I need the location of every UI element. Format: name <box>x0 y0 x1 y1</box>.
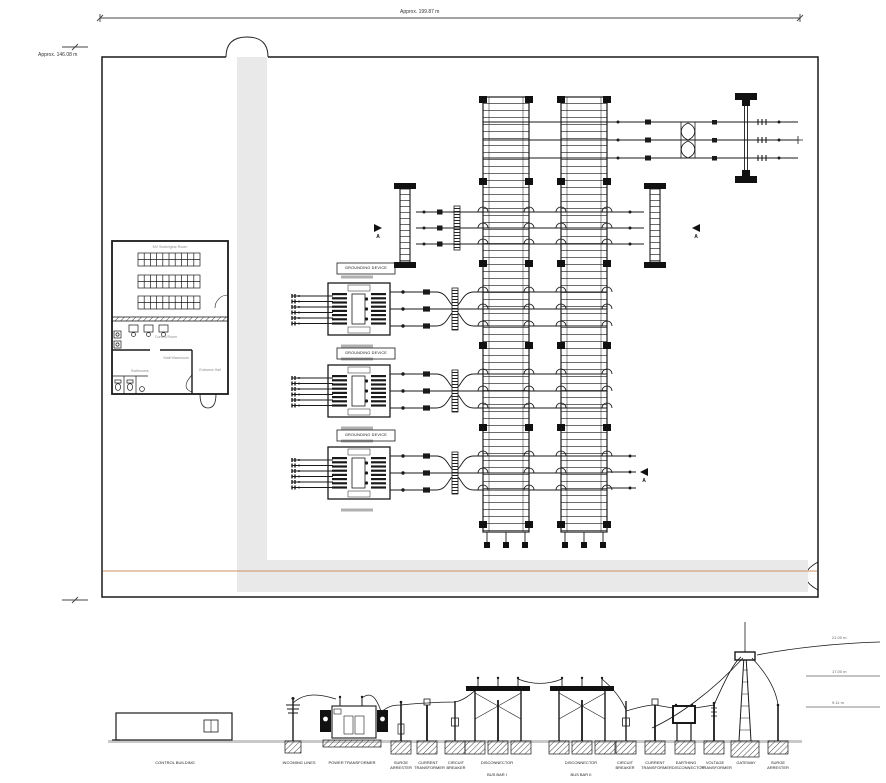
equip-label-disconnector-1: DISCONNECTOR <box>478 760 516 765</box>
equip-label-circuit-breaker-2: CIRCUIT BREAKER <box>615 760 635 770</box>
elevation-wires <box>381 642 880 728</box>
circuit-breaker-2 <box>623 701 630 741</box>
busbar-label-2: BUS BAR II <box>566 772 596 777</box>
room-label-switchgear: MV Switchgear Room <box>130 245 210 250</box>
busbar-portal-2 <box>550 677 614 741</box>
level-label-3: 9.11 m <box>832 700 844 705</box>
equip-label-earthing-disconnector: EARTHING DISCONNECTOR <box>672 760 700 770</box>
busbar-label-1: BUS BAR I <box>482 772 512 777</box>
level-label-1: 21.00 m <box>832 635 846 640</box>
equip-label-voltage-transformer: VOLTAGE TRANSFORMER <box>701 760 729 770</box>
equip-label-gateway: GATEWAY <box>733 760 759 765</box>
elevation-view <box>108 622 880 757</box>
section-marker-a3: A <box>642 478 646 484</box>
door-arc <box>215 295 228 308</box>
substation-drawing: Approx. 199.87 m Approx. 146.08 m GROUND… <box>0 0 886 783</box>
section-marker-a1: A <box>376 234 380 240</box>
equip-label-disconnector-2: DISCONNECTOR <box>562 760 600 765</box>
dimension-left-label: Approx. 146.08 m <box>38 52 77 59</box>
voltage-transformer <box>711 702 717 741</box>
surge-arrester-2 <box>777 704 780 741</box>
bathroom-fixtures <box>112 376 148 394</box>
grounding-device-label-2: GROUNDING DEVICE <box>337 351 395 356</box>
entrance-door-arcs <box>200 394 216 408</box>
dimension-lines <box>62 14 803 603</box>
busbar-structure-2 <box>557 96 611 548</box>
equip-label-incoming-lines: INCOMING LINES <box>278 760 320 765</box>
section-arrow-icon <box>640 468 648 476</box>
line-bay-middle <box>374 183 700 268</box>
equip-label-current-transformer-1: CURRENT TRANSFORMER <box>414 760 442 770</box>
plan-view <box>62 14 818 603</box>
equip-label-power-transformer: POWER TRANSFORMER <box>327 760 377 765</box>
gate-arcs <box>226 37 268 57</box>
portal-right <box>644 183 666 268</box>
circuit-breaker-1 <box>452 701 459 741</box>
equip-label-surge-arrester-1: SURGE ARRESTER <box>390 760 412 770</box>
control-building-elevation <box>112 713 232 740</box>
dimension-top-label: Approx. 199.87 m <box>400 9 439 16</box>
gateway-tower <box>735 622 755 741</box>
room-label-control: Control Room <box>136 335 196 340</box>
section-marker-a2: A <box>694 234 698 240</box>
portal-left <box>394 183 416 268</box>
busbar-portal-1 <box>466 677 530 741</box>
equip-label-surge-arrester-2: SURGE ARRESTER <box>760 760 796 770</box>
switchgear-panels <box>138 253 200 309</box>
room-label-bathrooms: Bathrooms <box>120 369 160 374</box>
building-plan <box>112 241 228 408</box>
level-label-2: 17.00 m <box>832 669 846 674</box>
section-arrow-icon <box>374 224 382 232</box>
equip-label-current-transformer-2: CURRENT TRANSFORMER <box>641 760 669 770</box>
room-label-hall: Entrance Hall <box>193 368 227 373</box>
section-arrow-icon <box>692 224 700 232</box>
line-bay-top <box>483 93 803 183</box>
grounding-device-label-1: GROUNDING DEVICE <box>337 266 395 271</box>
surge-arrester-1 <box>398 701 404 741</box>
equipment-posts <box>398 622 779 741</box>
grounding-device-label-3: GROUNDING DEVICE <box>337 433 395 438</box>
busbar-structure-1 <box>479 96 533 548</box>
access-road <box>103 57 817 592</box>
room-label-washroom: Staff Washroom <box>146 356 206 361</box>
current-transformer-1 <box>424 699 430 741</box>
drawing-canvas <box>0 0 886 783</box>
power-transformer-elevation <box>320 695 388 738</box>
equip-label-circuit-breaker-1: CIRCUIT BREAKER <box>446 760 466 770</box>
equip-label-control-building: CONTROL BUILDING <box>152 760 198 765</box>
line-bay-lower-right <box>607 455 648 490</box>
tower-footings <box>735 93 757 183</box>
